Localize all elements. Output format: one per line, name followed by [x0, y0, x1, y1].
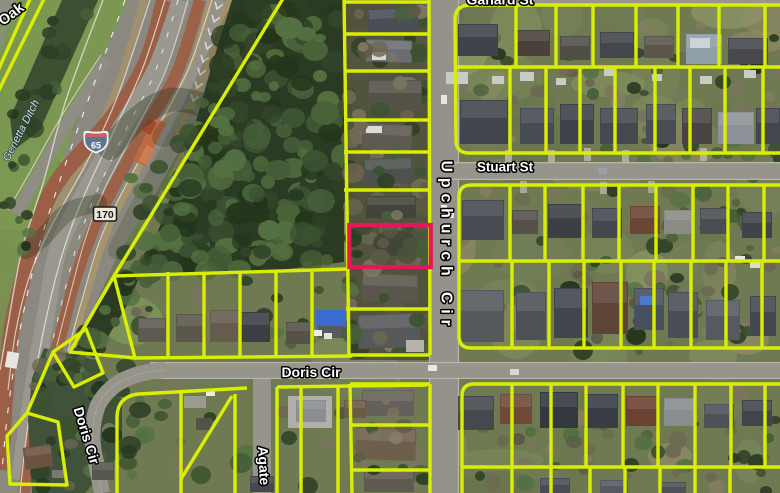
svg-text:Stuart St: Stuart St: [477, 160, 534, 175]
svg-text:Upchurch Cir: Upchurch Cir: [438, 161, 455, 332]
svg-text:170: 170: [96, 209, 114, 221]
svg-text:Ganard St: Ganard St: [467, 0, 534, 8]
svg-text:Agate: Agate: [255, 446, 273, 486]
svg-text:Doris Cir: Doris Cir: [281, 364, 341, 380]
svg-text:65: 65: [91, 141, 101, 151]
